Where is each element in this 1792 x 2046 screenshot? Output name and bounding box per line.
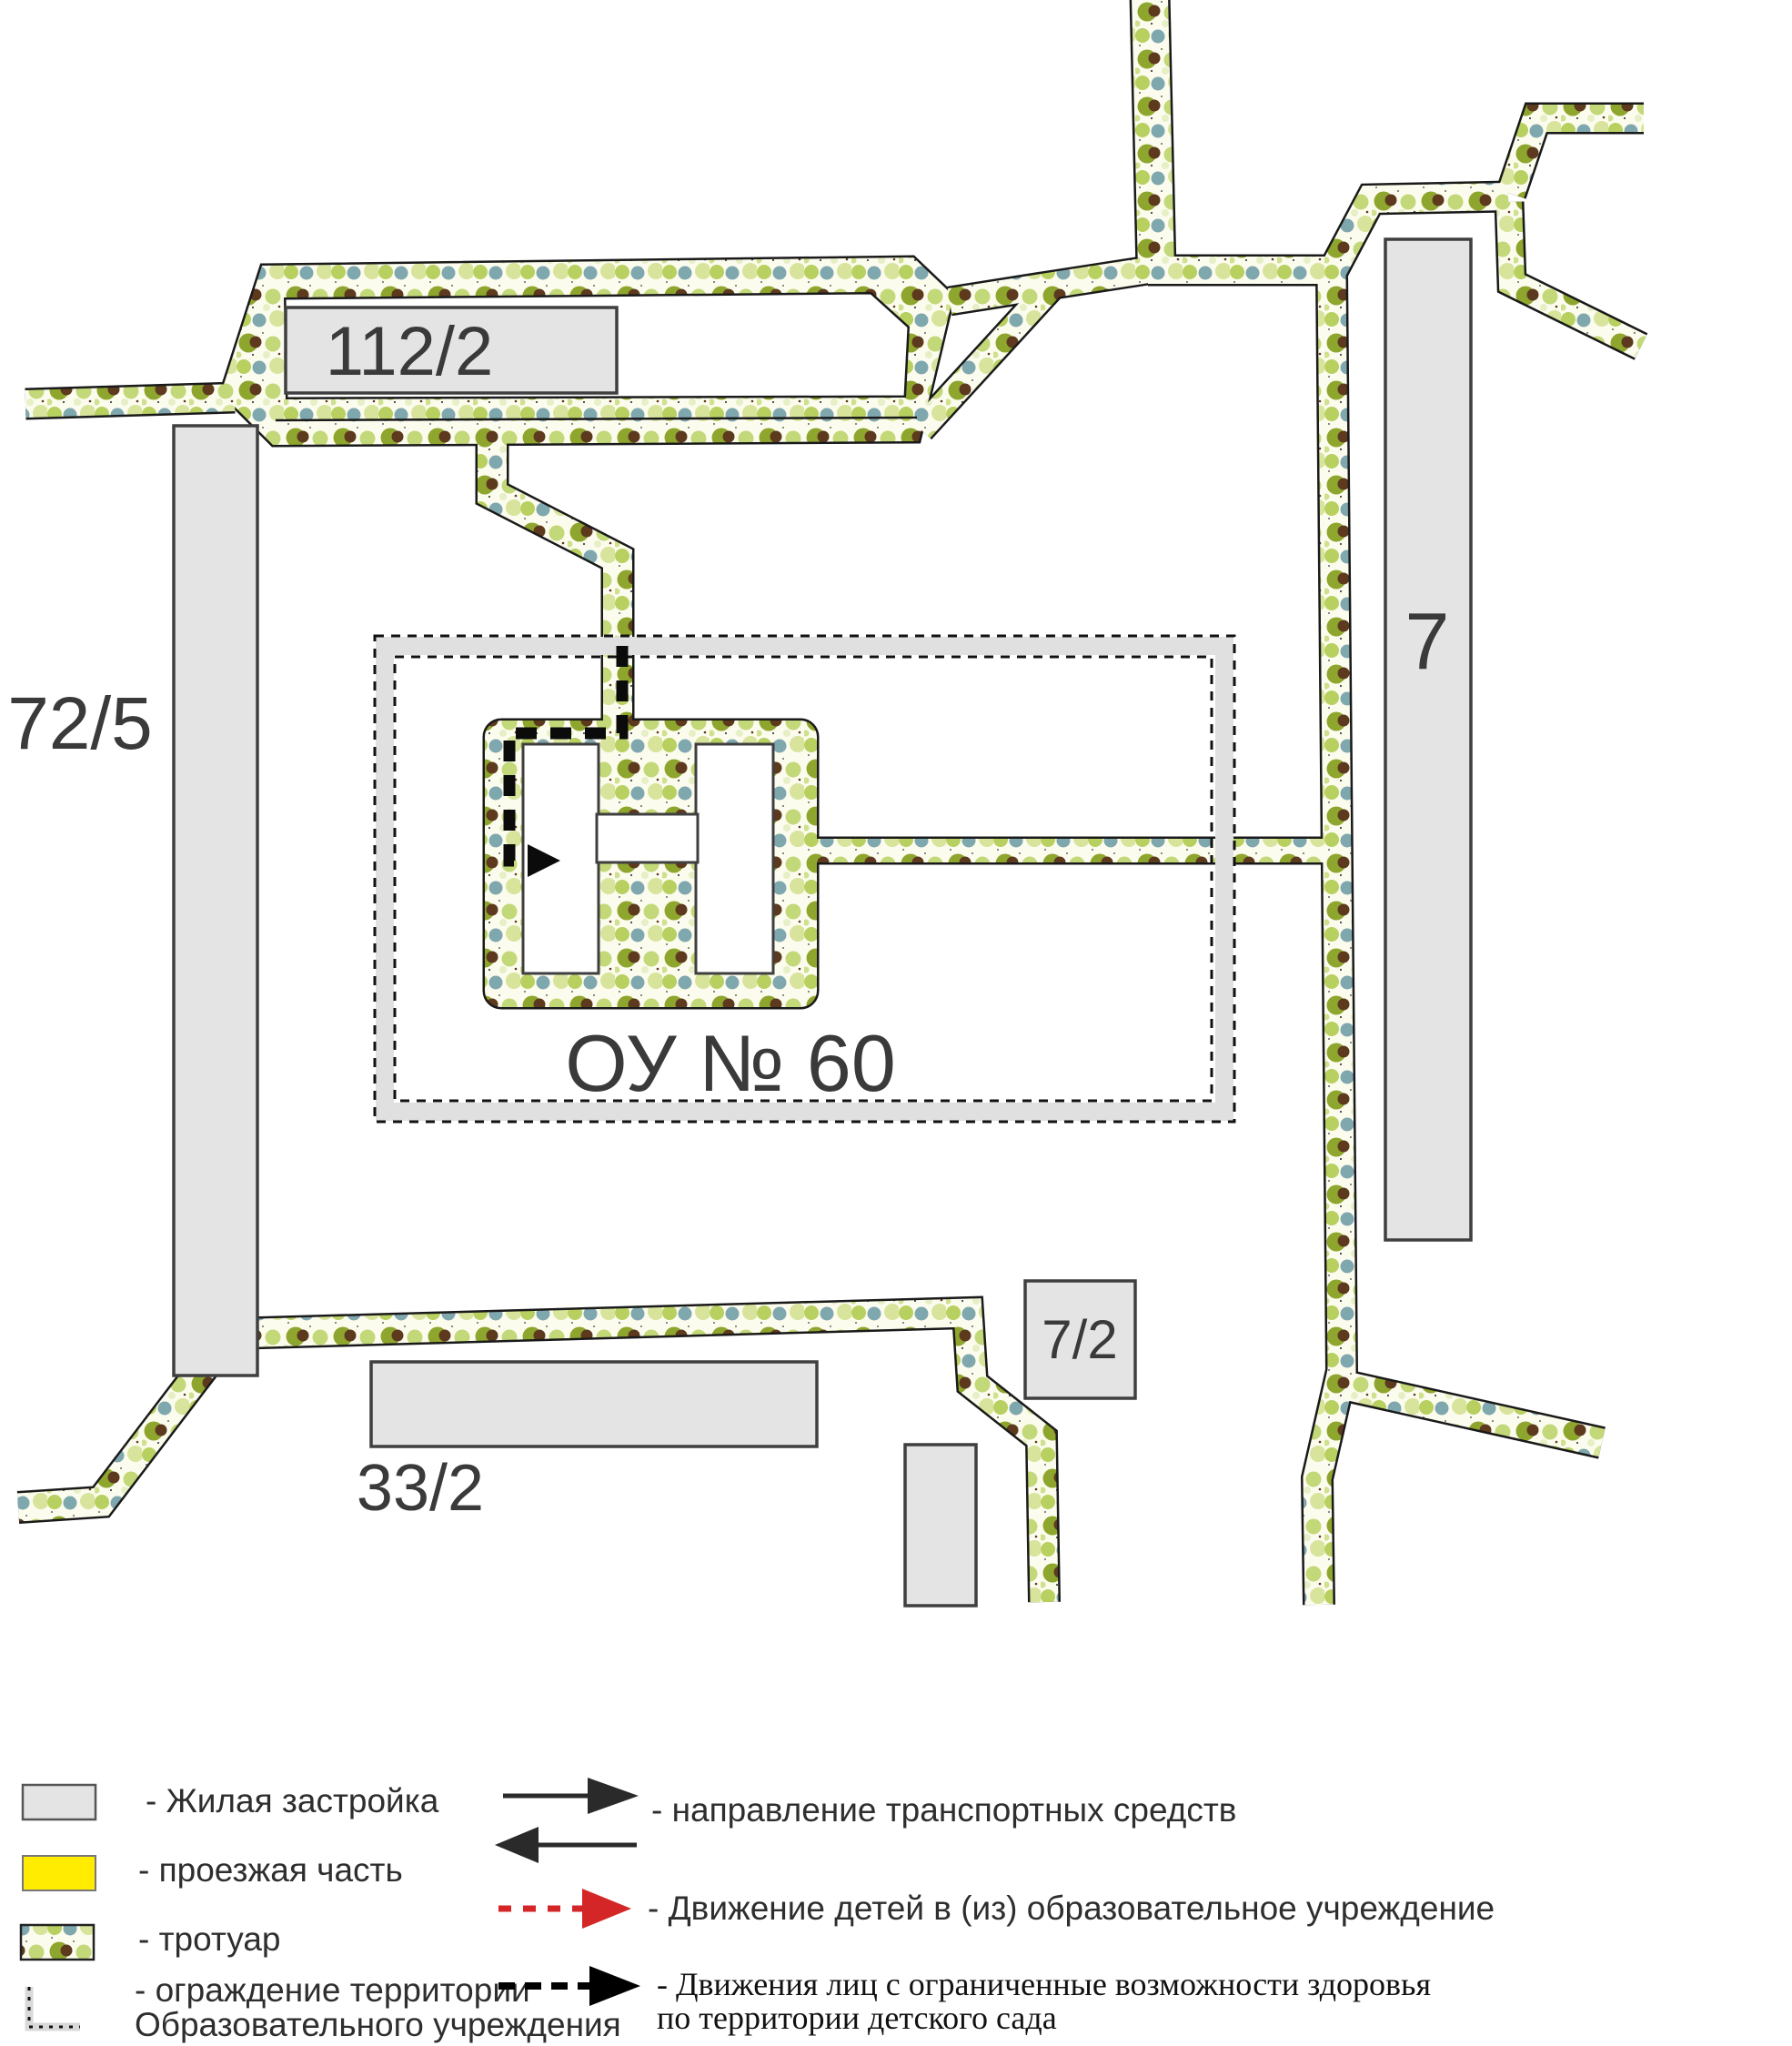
building-33-2	[371, 1362, 817, 1446]
legend-label-residential: - Жилая застройка	[146, 1782, 439, 1819]
residential-swatch	[23, 1785, 96, 1819]
building-unlabeled	[905, 1445, 976, 1606]
legend-label-sidewalk: - тротуар	[138, 1920, 281, 1958]
legend-label-traffic: - направление транспортных средств	[651, 1791, 1236, 1829]
legend-label-children-route: - Движение детей в (из) образовательное …	[648, 1890, 1495, 1927]
route-scheme-page: 112/2 72/5 7 7/2 33/2 ОУ № 60 - Жилая за…	[0, 0, 1792, 2046]
legend-label-disabled-line1: - Движения лиц с ограниченные возможност…	[657, 1966, 1431, 2002]
legend-label-roadway: - проезжая часть	[138, 1851, 403, 1889]
sidewalk-bottom-right-diagonal	[1337, 1384, 1602, 1443]
label-building-112-2: 112/2	[326, 313, 494, 390]
kindergarten-route-map: 112/2 72/5 7 7/2 33/2 ОУ № 60 - Жилая за…	[0, 0, 1792, 2046]
children-route-arrow-icon	[498, 1889, 631, 1929]
legend-label-disabled-line2: по территории детского сада	[657, 2000, 1057, 2036]
sidewalk-right-long-vertical	[1317, 272, 1342, 1605]
label-building-7: 7	[1405, 596, 1450, 686]
sidewalk-bottom-path	[18, 1313, 1044, 1602]
sidewalk-left-horizontal	[25, 398, 235, 404]
legend: - Жилая застройка - проезжая часть - тро…	[21, 1778, 1495, 2043]
sidewalk-swatch	[21, 1925, 94, 1960]
label-building-7-2: 7/2	[1042, 1309, 1117, 1370]
legend-label-fence-line2: Образовательного учреждения	[135, 2006, 621, 2043]
label-building-33-2: 33/2	[357, 1452, 484, 1525]
traffic-direction-arrows-icon	[495, 1778, 639, 1863]
building-7	[1385, 239, 1471, 1240]
sidewalk-school-entrance-stub	[492, 440, 618, 726]
fence-symbol-band	[29, 1987, 80, 2027]
legend-label-fence-line1: - ограждение территории	[135, 1971, 530, 2009]
sidewalk-top-vertical	[1150, 0, 1156, 270]
fence-symbol-dashed-icon	[29, 1987, 80, 2027]
label-building-72-5: 72/5	[7, 682, 153, 765]
building-72-5	[174, 426, 257, 1376]
sidewalk-right-down-diagonal	[1509, 202, 1641, 347]
label-school-ou-60: ОУ № 60	[565, 1018, 896, 1108]
roadway-swatch	[23, 1856, 96, 1890]
